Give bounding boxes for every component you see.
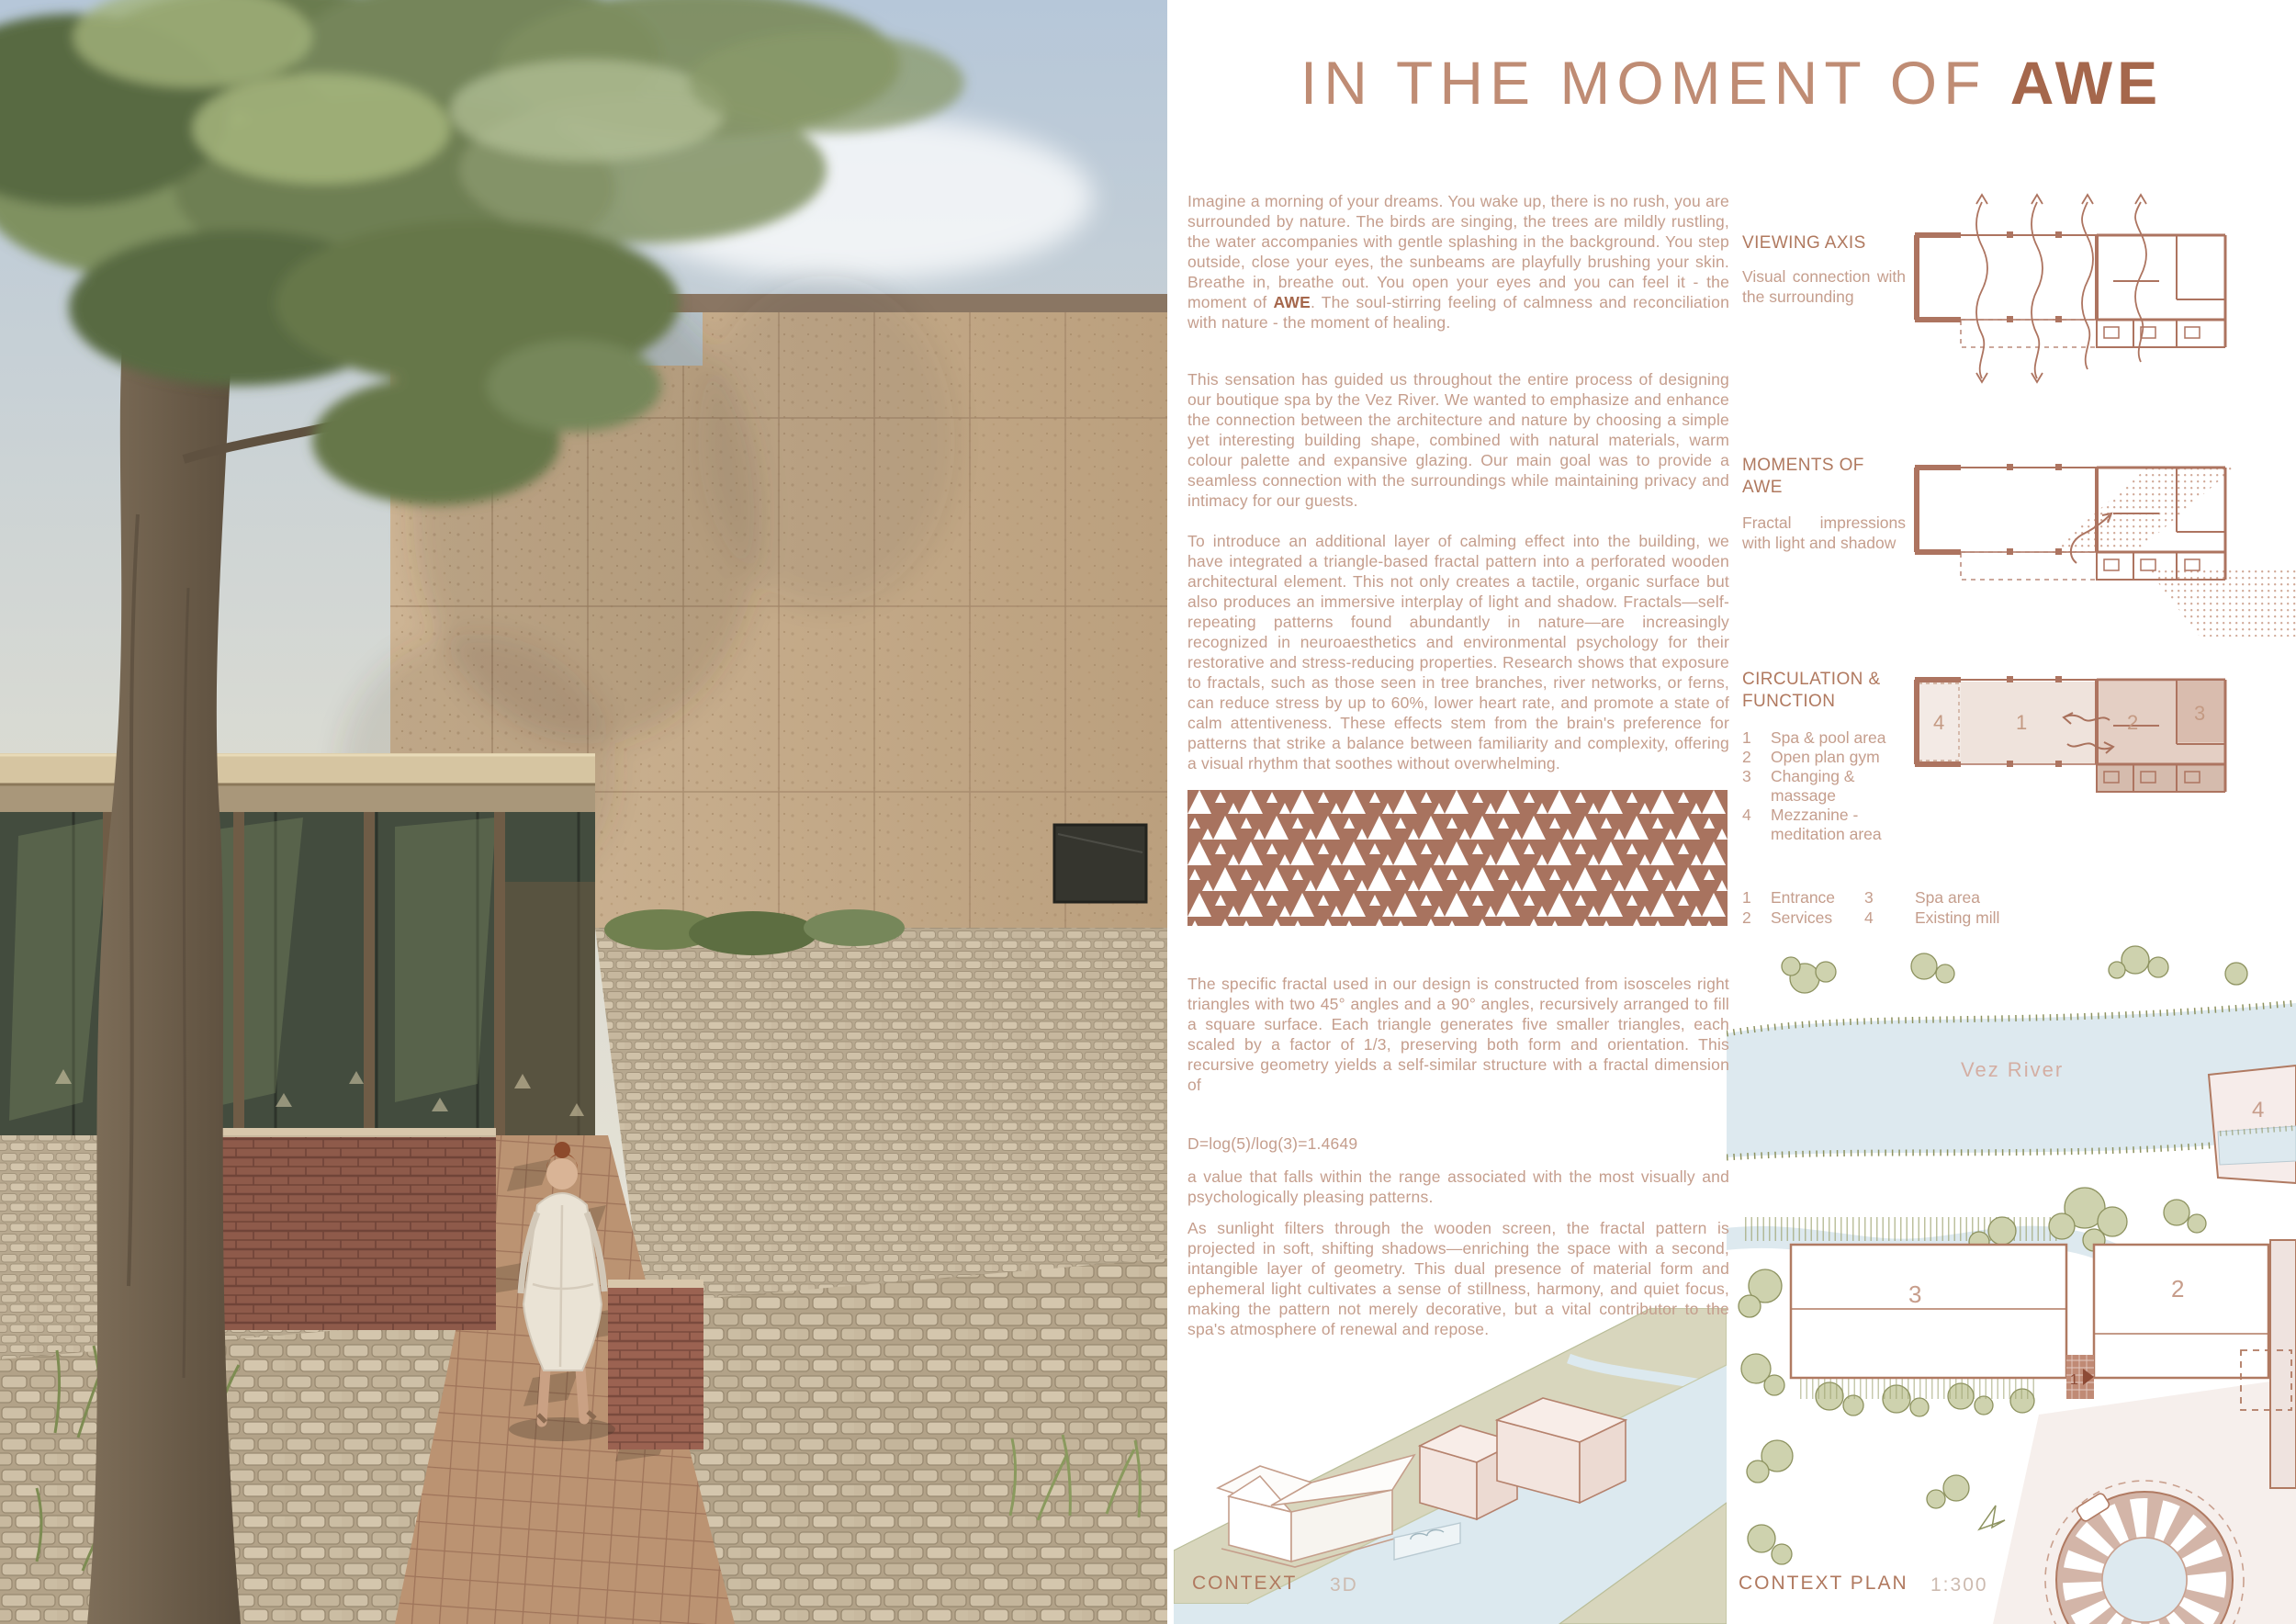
moments-of-awe-plan-diagram xyxy=(1913,447,2296,648)
fractal-pattern-strip xyxy=(1187,790,1728,926)
legend-num: 4 xyxy=(1864,908,1915,928)
legend-label: Entrance xyxy=(1771,887,1864,908)
item-label: Changing & massage xyxy=(1771,767,1899,806)
essay-paragraph-6: As sunlight filters through the wooden s… xyxy=(1187,1218,1729,1339)
caption-context-mode: 3D xyxy=(1330,1574,1358,1596)
item-label: Mezzanine - meditation area xyxy=(1771,806,1899,844)
item-label: Spa & pool area xyxy=(1771,728,1899,748)
list-item: 3Changing & massage xyxy=(1742,767,1926,806)
section-heading-circulation: CIRCULATION & FUNCTION xyxy=(1742,669,1894,713)
caption-context-plan-scale: 1:300 xyxy=(1930,1574,1988,1596)
context-plan-map: Vez River 4 xyxy=(1727,937,2296,1624)
essay-paragraph-5: a value that falls within the range asso… xyxy=(1187,1167,1729,1207)
legend-num: 1 xyxy=(1742,887,1771,908)
caption-context-plan: CONTEXT PLAN xyxy=(1739,1573,1908,1595)
presentation-board: IN THE MOMENT OF AWE Imagine a morning o… xyxy=(0,0,2296,1624)
river-label: Vez River xyxy=(1961,1058,2064,1081)
section-heading-viewing-axis: VIEWING AXIS xyxy=(1742,232,1926,254)
item-num: 2 xyxy=(1742,748,1771,767)
circulation-function-list: 1Spa & pool area 2Open plan gym 3Changin… xyxy=(1742,728,1926,844)
item-num: 1 xyxy=(1742,728,1771,748)
item-num: 4 xyxy=(1742,806,1771,844)
context-plan-legend: 1 Entrance 3 Spa area 2 Services 4 Exist… xyxy=(1742,887,2073,928)
north-arrow-icon xyxy=(1979,1506,2005,1529)
list-item: 1Spa & pool area xyxy=(1742,728,1926,748)
page-title: IN THE MOMENT OF AWE xyxy=(1180,48,2282,118)
legend-label: Spa area xyxy=(1915,887,2062,908)
map-number-gym: 2 xyxy=(2171,1275,2184,1303)
section-heading-moments-of-awe: MOMENTS OF AWE xyxy=(1742,455,1880,499)
section-body-moments-of-awe: Fractal impressions with light and shado… xyxy=(1742,513,1906,553)
pergola xyxy=(0,753,595,1135)
room-number-4: 4 xyxy=(1933,711,1944,734)
essay-paragraph-1: Imagine a morning of your dreams. You wa… xyxy=(1187,191,1729,333)
circulation-plan-diagram: 4 1 2 3 xyxy=(1913,667,2296,805)
item-label: Open plan gym xyxy=(1771,748,1899,767)
essay-paragraph-2: This sensation has guided us throughout … xyxy=(1187,369,1729,511)
legend-num: 3 xyxy=(1864,887,1915,908)
essay-paragraph-4: The specific fractal used in our design … xyxy=(1187,974,1729,1095)
map-number-entrance: 1 xyxy=(2070,1372,2078,1388)
brick-wall-right xyxy=(608,1286,703,1449)
legend-num: 2 xyxy=(1742,908,1771,928)
room-number-2: 2 xyxy=(2127,711,2138,734)
room-number-3: 3 xyxy=(2194,702,2205,725)
p1-awe: AWE xyxy=(1274,293,1311,311)
fractal-dimension-formula: D=log(5)/log(3)=1.4649 xyxy=(1187,1133,1729,1154)
title-prefix: IN THE MOMENT OF xyxy=(1300,49,2010,117)
view-flow-arrows xyxy=(1976,195,2146,382)
caption-context: CONTEXT xyxy=(1192,1573,1297,1595)
legend-label: Services xyxy=(1771,908,1864,928)
viewing-axis-plan-diagram xyxy=(1913,189,2296,388)
gym-block: 2 xyxy=(2094,1245,2268,1378)
spa-block: 3 xyxy=(1791,1245,2066,1378)
list-item: 4Mezzanine - meditation area xyxy=(1742,806,1926,844)
title-accent: AWE xyxy=(2010,49,2162,117)
map-number-spa: 3 xyxy=(1908,1280,1921,1308)
mill-building: 4 xyxy=(2209,1066,2296,1183)
item-num: 3 xyxy=(1742,767,1771,806)
glass-reflections xyxy=(9,818,496,1121)
hero-rendering xyxy=(0,0,1167,1624)
legend-label: Existing mill xyxy=(1915,908,2062,928)
light-band-hatch xyxy=(2051,468,2234,552)
essay-paragraph-3: To introduce an additional layer of calm… xyxy=(1187,531,1729,773)
section-body-viewing-axis: Visual connection with the surrounding xyxy=(1742,266,1906,307)
room-number-1: 1 xyxy=(2016,711,2027,734)
map-number-mill: 4 xyxy=(2252,1098,2264,1122)
entrance-marker: 1 xyxy=(2066,1355,2094,1399)
list-item: 2Open plan gym xyxy=(1742,748,1926,767)
